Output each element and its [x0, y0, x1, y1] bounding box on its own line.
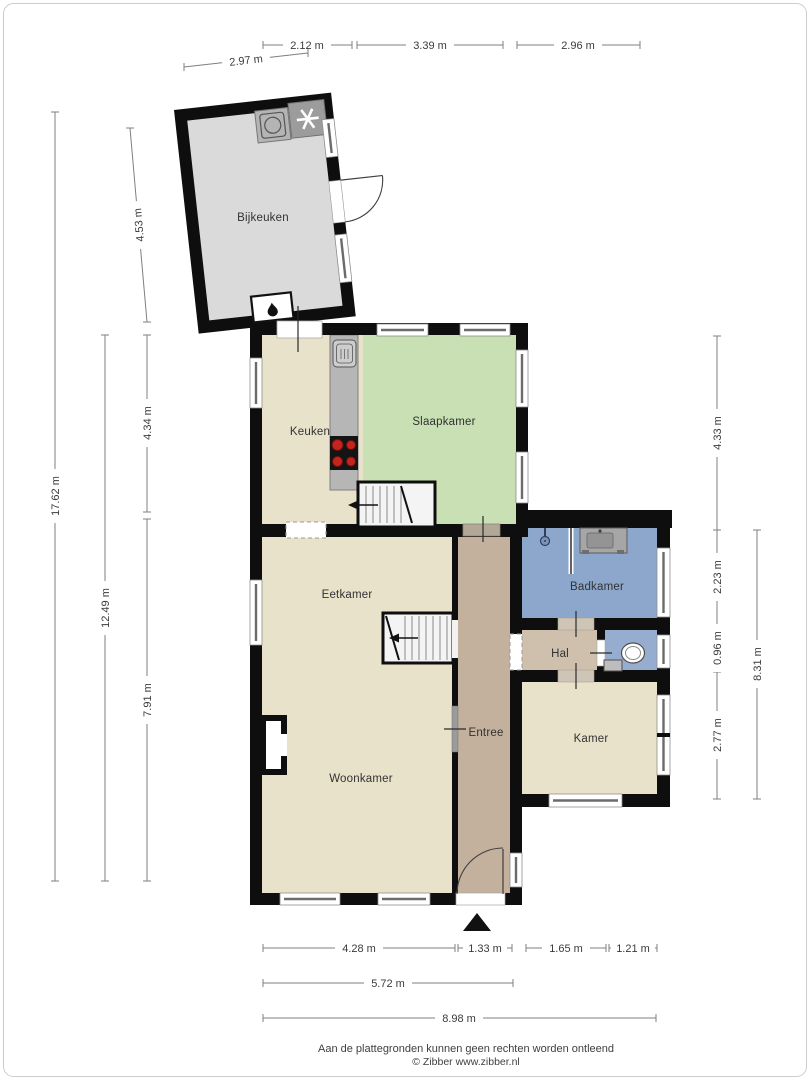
- svg-text:2.97 m: 2.97 m: [229, 53, 264, 69]
- washing-machine-icon: [255, 108, 291, 143]
- window-kamer-bottom: [549, 794, 622, 807]
- svg-text:4.28 m: 4.28 m: [342, 943, 376, 955]
- dim-left-lower: 7.91 m: [140, 676, 154, 724]
- wall-extension-top: [516, 510, 672, 528]
- dim-bottom-total: 8.98 m: [435, 1011, 483, 1025]
- label-eetkamer: Eetkamer: [322, 589, 373, 601]
- svg-text:12.49 m: 12.49 m: [100, 588, 112, 628]
- dim-bottom-4: 1.21 m: [611, 941, 655, 955]
- label-entree: Entree: [468, 727, 503, 739]
- entree-floor: [458, 530, 510, 893]
- sink-icon: [333, 340, 356, 367]
- svg-text:5.72 m: 5.72 m: [371, 978, 405, 990]
- svg-text:0.96 m: 0.96 m: [712, 631, 724, 665]
- stove-icon: [330, 436, 358, 470]
- dim-left-total: 17.62 m: [48, 469, 62, 523]
- dim-right-upper: 4.33 m: [710, 409, 724, 457]
- svg-text:17.62 m: 17.62 m: [50, 476, 62, 516]
- svg-text:1.21 m: 1.21 m: [616, 943, 650, 955]
- opening-keuken-eetkamer: [286, 522, 326, 538]
- bijkeuken-door: [329, 176, 387, 224]
- dim-bottom-3: 1.65 m: [542, 941, 590, 955]
- window-slaapkamer-1: [516, 350, 528, 407]
- label-kamer: Kamer: [574, 733, 609, 745]
- window-badkamer-right: [657, 548, 670, 617]
- floorplan-page: Bijkeuken Keuken Slaapkamer Eetkamer Woo…: [0, 0, 810, 1080]
- svg-text:3.39 m: 3.39 m: [413, 40, 447, 52]
- svg-text:1.65 m: 1.65 m: [549, 943, 583, 955]
- fireplace-woonkamer: [262, 715, 287, 775]
- footer-disclaimer: Aan de plattegronden kunnen geen rechten…: [318, 1043, 614, 1055]
- svg-text:8.31 m: 8.31 m: [752, 647, 764, 681]
- svg-text:7.91 m: 7.91 m: [142, 683, 154, 717]
- dim-left-main: 12.49 m: [98, 581, 112, 635]
- opening-entree-stairs: [452, 620, 458, 658]
- window-top-2: [460, 324, 510, 336]
- floorplan-canvas: Bijkeuken Keuken Slaapkamer Eetkamer Woo…: [0, 0, 810, 1080]
- dim-bijkeuken-width: 2.97 m: [221, 50, 270, 69]
- svg-text:4.33 m: 4.33 m: [712, 416, 724, 450]
- dim-right-total: 8.31 m: [750, 640, 764, 688]
- svg-text:2.96 m: 2.96 m: [561, 40, 595, 52]
- window-woonkamer-bottom-2: [378, 893, 430, 905]
- svg-text:8.98 m: 8.98 m: [442, 1013, 476, 1025]
- entrance-arrow-icon: [463, 913, 491, 931]
- dim-bottom-1: 4.28 m: [335, 941, 383, 955]
- stairs-upper: [348, 482, 435, 527]
- svg-text:2.77 m: 2.77 m: [712, 718, 724, 752]
- wall-entree-right: [510, 528, 522, 905]
- label-woonkamer: Woonkamer: [329, 773, 393, 785]
- svg-text:1.33 m: 1.33 m: [468, 943, 502, 955]
- dim-top-2: 3.39 m: [406, 38, 454, 52]
- label-hal: Hal: [551, 648, 569, 660]
- dim-top-1: 2.12 m: [283, 38, 331, 52]
- window-toilet-right: [657, 635, 670, 668]
- svg-text:4.34 m: 4.34 m: [142, 406, 154, 440]
- dim-right-kamer: 2.77 m: [710, 711, 724, 759]
- window-top-1: [377, 324, 428, 336]
- label-keuken: Keuken: [290, 426, 330, 438]
- svg-text:4.53 m: 4.53 m: [132, 208, 147, 243]
- dim-right-badkamer: 2.23 m: [710, 553, 724, 601]
- window-woonkamer-bottom-1: [280, 893, 340, 905]
- stairs-lower: [383, 613, 453, 663]
- window-kamer-right: [657, 695, 670, 775]
- window-entree-right: [510, 853, 522, 887]
- window-slaapkamer-2: [516, 452, 528, 503]
- dim-bottom-2: 1.33 m: [463, 941, 507, 955]
- label-slaapkamer: Slaapkamer: [412, 416, 475, 428]
- dim-top-3: 2.96 m: [554, 38, 602, 52]
- dim-right-hal: 0.96 m: [710, 624, 724, 672]
- dim-left-upper: 4.34 m: [140, 399, 154, 447]
- window-keuken-left: [250, 358, 262, 408]
- ventilation-fan-icon: [288, 100, 328, 139]
- label-badkamer: Badkamer: [570, 581, 624, 593]
- svg-text:2.12 m: 2.12 m: [290, 40, 324, 52]
- room-bijkeuken: [174, 88, 397, 334]
- window-eetkamer-left: [250, 580, 262, 645]
- vanity-icon: [580, 528, 627, 554]
- svg-text:2.23 m: 2.23 m: [712, 560, 724, 594]
- opening-entree-hal: [510, 634, 522, 670]
- dim-bottom-mid: 5.72 m: [364, 976, 412, 990]
- fireplace-icon: [251, 292, 294, 322]
- dim-bijkeuken-height: 4.53 m: [129, 200, 147, 249]
- footer-credit: © Zibber www.zibber.nl: [412, 1056, 520, 1068]
- label-bijkeuken: Bijkeuken: [237, 212, 289, 224]
